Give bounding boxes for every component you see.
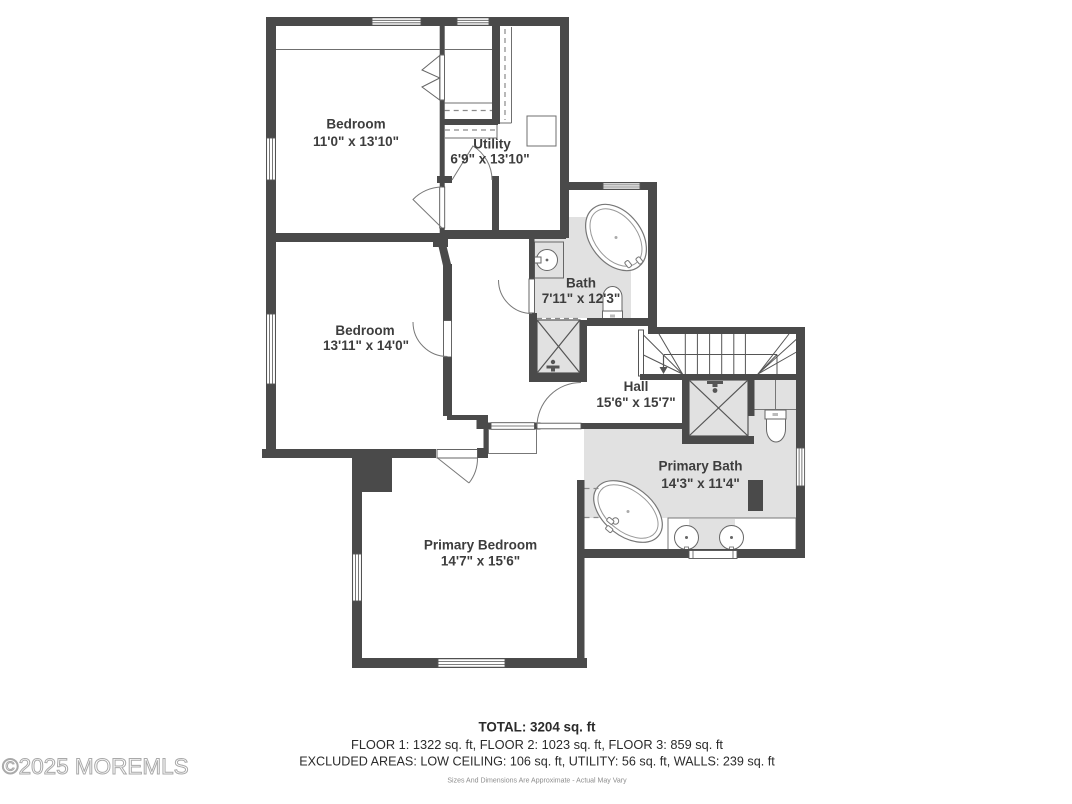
svg-text:Hall: Hall	[624, 379, 649, 394]
svg-text:Utility: Utility	[473, 137, 511, 152]
svg-text:TOTAL: 3204 sq. ft: TOTAL: 3204 sq. ft	[478, 720, 596, 735]
svg-text:14'7" x 15'6": 14'7" x 15'6"	[441, 554, 520, 569]
svg-text:7'11" x 12'3": 7'11" x 12'3"	[542, 291, 621, 306]
svg-text:EXCLUDED AREAS: LOW CEILING: 1: EXCLUDED AREAS: LOW CEILING: 106 sq. ft,…	[299, 755, 775, 769]
svg-text:Primary Bedroom: Primary Bedroom	[424, 538, 537, 553]
svg-text:6'9" x 13'10": 6'9" x 13'10"	[450, 152, 529, 167]
svg-text:Primary Bath: Primary Bath	[658, 459, 742, 474]
svg-text:Bedroom: Bedroom	[326, 117, 385, 132]
svg-text:Bedroom: Bedroom	[335, 323, 394, 338]
svg-text:11'0" x 13'10": 11'0" x 13'10"	[313, 134, 399, 149]
svg-text:15'6" x 15'7": 15'6" x 15'7"	[596, 395, 675, 410]
svg-text:14'3" x 11'4": 14'3" x 11'4"	[661, 476, 740, 491]
svg-text:FLOOR 1: 1322 sq. ft, FLOOR 2:: FLOOR 1: 1322 sq. ft, FLOOR 2: 1023 sq. …	[351, 737, 723, 752]
svg-text:©2025 MOREMLS: ©2025 MOREMLS	[2, 754, 189, 779]
svg-text:13'11" x 14'0": 13'11" x 14'0"	[323, 338, 409, 353]
svg-text:Bath: Bath	[566, 276, 596, 291]
svg-text:Sizes And Dimensions Are Appro: Sizes And Dimensions Are Approximate - A…	[447, 778, 627, 785]
